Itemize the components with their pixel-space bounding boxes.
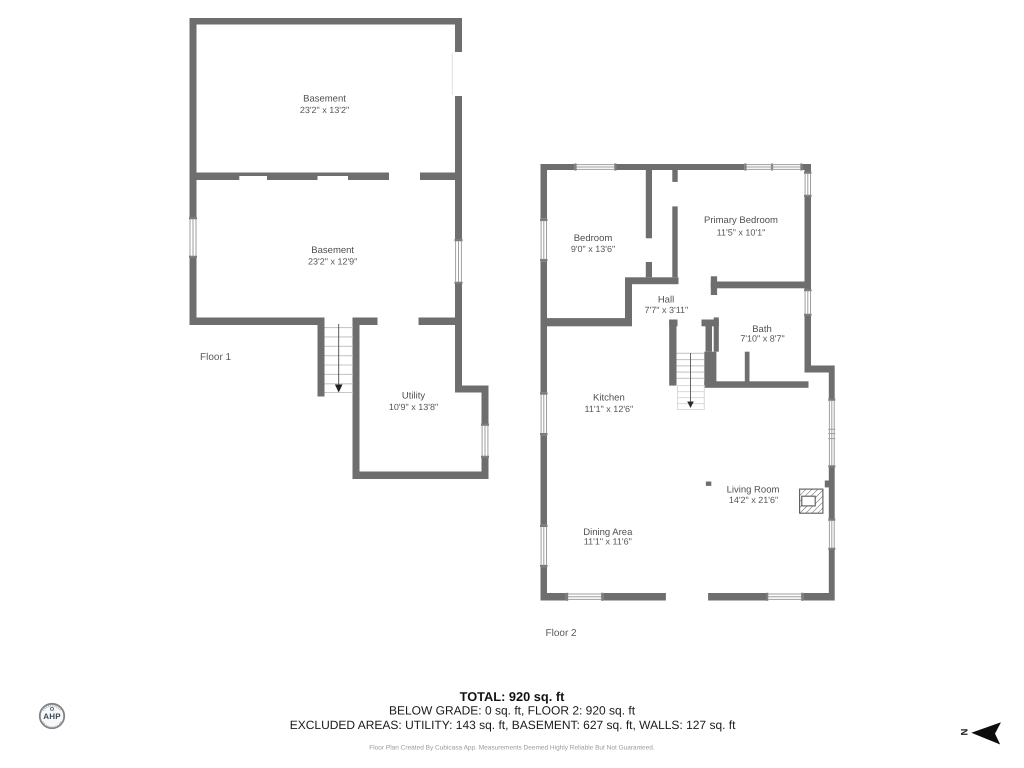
svg-text:10'9" x 13'8": 10'9" x 13'8" [389, 402, 438, 412]
svg-text:Kitchen: Kitchen [593, 393, 625, 404]
svg-text:Utility: Utility [402, 391, 425, 402]
svg-text:7'7" x 3'11": 7'7" x 3'11" [645, 305, 689, 315]
svg-text:Floor 1: Floor 1 [200, 352, 232, 363]
svg-text:11'1" x 11'6": 11'1" x 11'6" [584, 537, 632, 547]
svg-text:BELOW GRADE: 0 sq. ft, FLOOR 2: BELOW GRADE: 0 sq. ft, FLOOR 2: 920 sq. … [389, 704, 636, 718]
svg-text:11'1" x 12'6": 11'1" x 12'6" [585, 404, 634, 414]
svg-text:11'5" x 10'1": 11'5" x 10'1" [717, 228, 766, 238]
svg-text:Hall: Hall [658, 295, 674, 306]
svg-text:EXCLUDED AREAS: UTILITY: 143 s: EXCLUDED AREAS: UTILITY: 143 sq. ft, BAS… [290, 718, 736, 732]
svg-text:Floor 2: Floor 2 [546, 628, 578, 639]
svg-text:14'2" x 21'6": 14'2" x 21'6" [729, 495, 778, 505]
svg-text:Basement: Basement [311, 245, 354, 256]
svg-text:N: N [959, 728, 970, 735]
svg-text:9'0" x 13'6": 9'0" x 13'6" [571, 244, 615, 254]
svg-text:23'2" x 12'9": 23'2" x 12'9" [308, 257, 357, 267]
svg-text:AHP: AHP [43, 712, 61, 721]
svg-text:7'10" x 8'7": 7'10" x 8'7" [740, 334, 784, 344]
svg-text:Floor Plan Created By Cubicasa: Floor Plan Created By Cubicasa App. Meas… [369, 744, 655, 751]
svg-text:TOTAL: 920 sq. ft: TOTAL: 920 sq. ft [460, 689, 565, 704]
svg-text:Primary Bedroom: Primary Bedroom [704, 215, 778, 226]
svg-text:23'2" x 13'2": 23'2" x 13'2" [300, 105, 349, 115]
svg-text:Basement: Basement [303, 94, 346, 105]
svg-text:Bedroom: Bedroom [574, 233, 613, 244]
svg-text:Living Room: Living Room [727, 485, 780, 496]
